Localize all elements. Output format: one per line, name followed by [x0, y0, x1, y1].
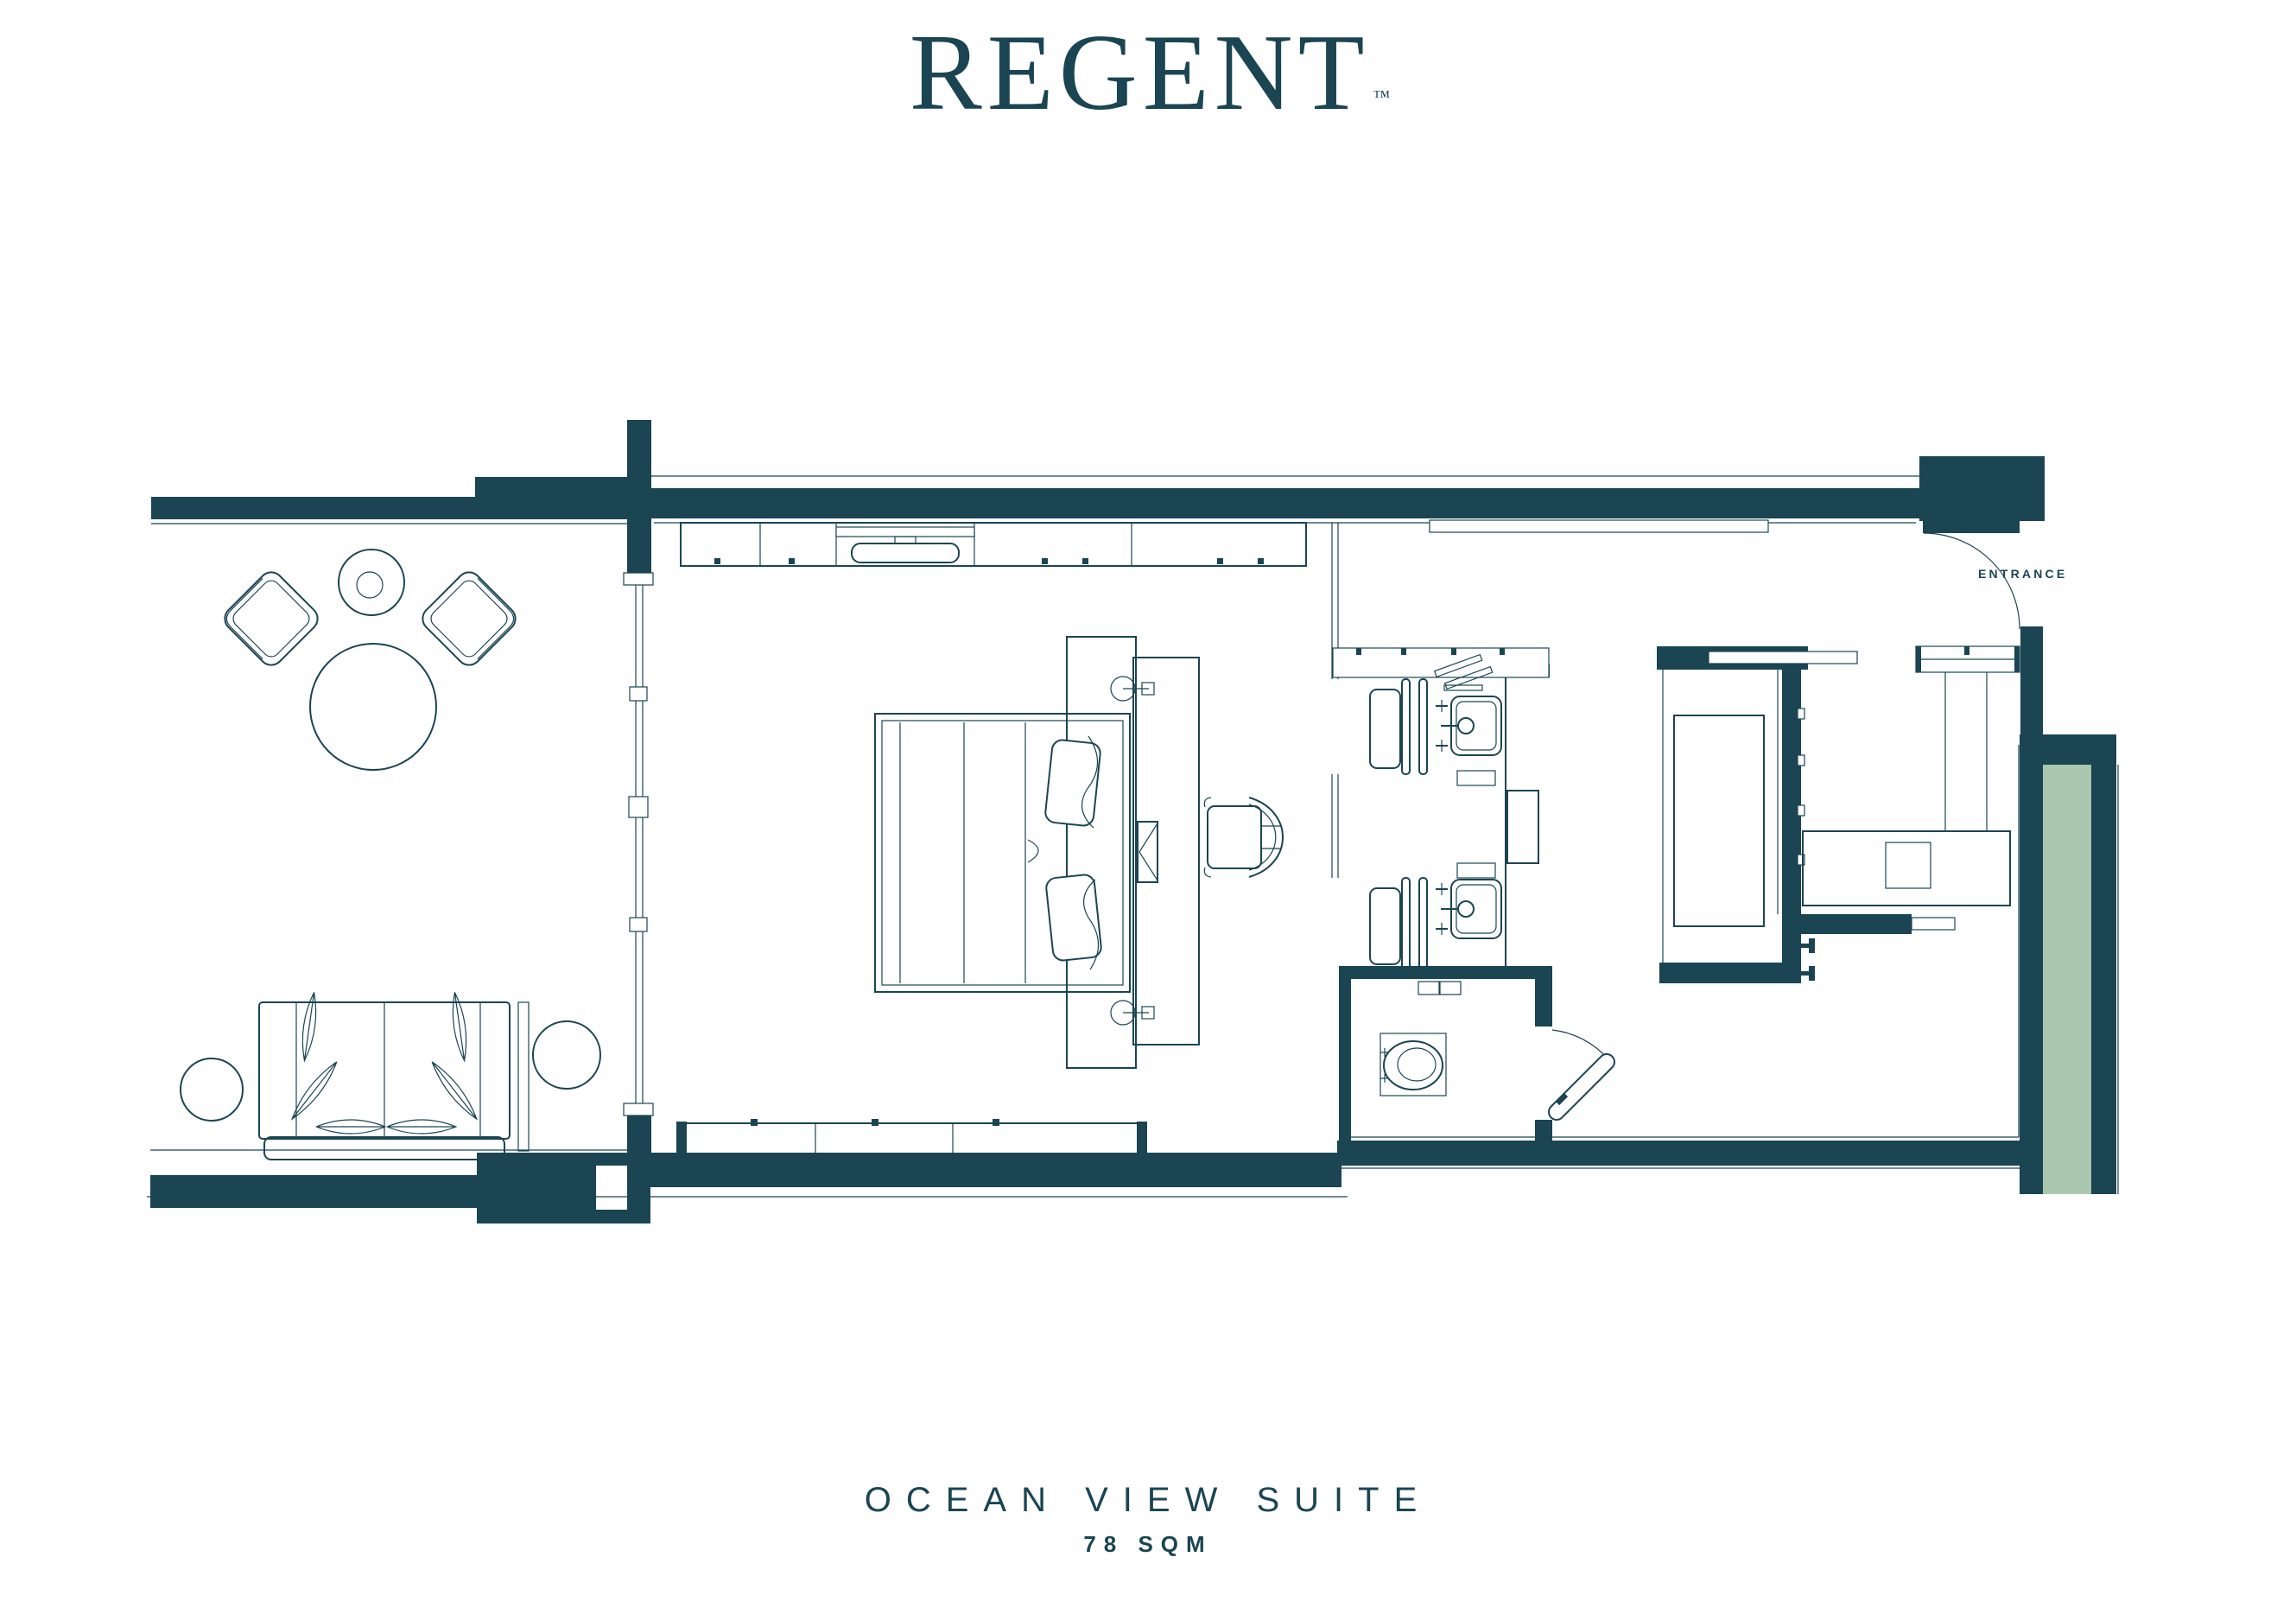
terrace-glass-wall [624, 573, 653, 1115]
vanity-shelf [1457, 771, 1495, 785]
wc-north-wall [1339, 966, 1538, 979]
glass-door-panel [1419, 878, 1427, 973]
chair-arm [1204, 868, 1211, 877]
wc-west-wall [1339, 966, 1351, 1141]
east-wall-top-cap [2020, 734, 2116, 765]
cistern-button [1440, 982, 1461, 995]
wc-door-swing-arc [1552, 1030, 1608, 1059]
sink-bottom [1436, 880, 1501, 938]
glass-mullion-1 [630, 687, 647, 701]
tv-screen [836, 527, 974, 537]
bench-end-post [1137, 1122, 1147, 1161]
armchair-seat [230, 577, 313, 660]
south-junction-notch [596, 1166, 627, 1210]
entry-door-pier [2020, 626, 2043, 743]
suite-title: OCEAN VIEW SUITE [0, 1481, 2296, 1520]
sofa-side-table-right [533, 1021, 600, 1089]
bench-end-post [676, 1122, 687, 1161]
east-wall-inner-border [2020, 765, 2043, 1194]
glass-door-panel [1402, 679, 1410, 774]
wc-door-leaf [1545, 1051, 1617, 1122]
sofa-side-panel [518, 1002, 529, 1151]
entry-threshold-wall [1923, 521, 2020, 533]
console-handles [714, 558, 1264, 564]
terrace-south-wall [150, 1175, 477, 1208]
desk-chair [1204, 798, 1283, 877]
media-console [681, 523, 1306, 566]
glass-door-panel [1402, 878, 1410, 973]
sofa-seat-cushion-right [387, 1120, 456, 1134]
terrace-side-table [339, 550, 404, 615]
wc-door [1545, 1030, 1617, 1123]
armchair-frame [220, 568, 323, 671]
terrace-top-wall-thick [475, 477, 629, 519]
sliding-door-leaf-north [1709, 651, 1857, 664]
entrance-door-swing-arc [1924, 533, 2020, 629]
wc-room [1380, 982, 1618, 1123]
vanity [1333, 648, 1549, 966]
bathroom [1332, 523, 1549, 973]
pivot-door-station-bottom [1370, 878, 1427, 973]
luggage-bench-tray [1886, 842, 1931, 888]
wc-door-pier [1535, 966, 1552, 1026]
vanity-ledge [1333, 648, 1549, 677]
duvet-crease [1028, 840, 1038, 862]
terrace-side-table-inner [357, 572, 383, 598]
cistern-button [1418, 982, 1439, 995]
sofa-side-table-left [181, 1058, 243, 1121]
suite-area: 78 SQM [0, 1531, 2296, 1558]
bed-area [875, 637, 1283, 1068]
bathtub [1674, 715, 1764, 926]
column-south [627, 1115, 651, 1180]
terrace-round-table [310, 644, 436, 770]
armchair-frame [418, 568, 521, 671]
vanity-shelf [1457, 863, 1495, 878]
tv-base-shelf [852, 543, 959, 562]
main-north-wall [641, 488, 1919, 518]
south-wall-east [1337, 1141, 2027, 1166]
terrace-sofa-area [181, 991, 600, 1160]
glass-cap-top [624, 573, 653, 585]
chair-back-inner [1249, 804, 1276, 870]
dressing-south-wall [1801, 914, 1912, 934]
bench-knob [751, 1119, 758, 1126]
rear-console-desk [1133, 658, 1199, 1045]
sofa-seat-cushion-left [316, 1120, 385, 1134]
tv-bracket [895, 537, 916, 543]
armchair-back-cushion [437, 578, 517, 658]
pillow [1045, 874, 1102, 961]
entrance-door [1924, 533, 2020, 629]
console-cabinet [681, 523, 1306, 566]
toilet [1380, 1033, 1446, 1096]
sink-top [1436, 696, 1501, 755]
armchair-back-cushion [222, 578, 302, 658]
glass-cap-bottom [624, 1103, 653, 1115]
terrace-armchair-left [220, 568, 323, 671]
sliding-door-leaf-south [1912, 918, 1955, 930]
pivot-door-station-top [1370, 679, 1427, 774]
floorplan-drawing [0, 0, 2296, 1608]
bedroom-bathroom-partition [1332, 523, 1338, 878]
bench-knob [872, 1119, 878, 1126]
bench-knob [993, 1119, 999, 1126]
glass-door-panel [1419, 679, 1427, 774]
terrace-top-wall-thin [151, 497, 481, 519]
wall-bench [1370, 690, 1400, 768]
entry-wall-block [1919, 456, 2045, 521]
glass-mullion-2 [629, 797, 648, 817]
chair-back-outer [1249, 798, 1283, 877]
pillow [1044, 739, 1101, 826]
terrace-sitting-area [220, 550, 521, 770]
glass-mullion-3 [630, 918, 647, 931]
bathtub-room-south-wall [1659, 963, 1782, 983]
vanity-stool [1507, 791, 1538, 863]
console-tv [1138, 822, 1158, 882]
floorplan-page: REGENT™ [0, 0, 2296, 1608]
leaf-cushion [288, 1058, 341, 1122]
shower-heads [1801, 938, 1815, 981]
east-wall-outer-border [2091, 765, 2116, 1194]
chair-seat [1208, 806, 1261, 868]
south-wall-bedroom [641, 1153, 1341, 1187]
service-shaft-green-strip [2043, 765, 2091, 1194]
chair-arm [1204, 798, 1211, 807]
entry-closet [1916, 646, 2020, 831]
armchair-seat [428, 577, 511, 660]
sofa-base [264, 1137, 504, 1160]
sliding-track-recess [1430, 520, 1768, 532]
terrace-armchair-right [418, 568, 521, 671]
wall-bench [1370, 888, 1400, 964]
entrance-label: ENTRANCE [1978, 567, 2067, 581]
leaf-cushion [428, 1058, 481, 1122]
headboard-panel [1067, 637, 1136, 1068]
